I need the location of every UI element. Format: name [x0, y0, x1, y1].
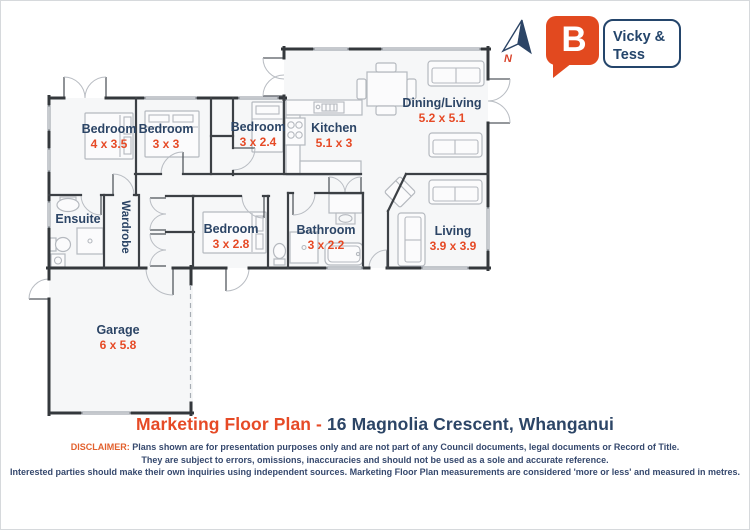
- disclaimer-line-3: Interested parties should make their own…: [1, 467, 749, 477]
- svg-text:3 x 2.8: 3 x 2.8: [213, 237, 250, 251]
- svg-text:3 x 2.4: 3 x 2.4: [240, 135, 277, 149]
- bed-icon: [85, 113, 133, 159]
- svg-text:5.2 x 5.1: 5.2 x 5.1: [419, 111, 466, 125]
- door-swing: [263, 58, 284, 79]
- disclaimer-text-2: They are subject to errors, omissions, i…: [141, 455, 608, 465]
- sofa-icon: [429, 180, 482, 204]
- door-swing: [85, 77, 106, 98]
- plan-title-address: 16 Magnolia Crescent, Whanganui: [327, 414, 614, 434]
- svg-text:Ensuite: Ensuite: [55, 212, 100, 226]
- toilet-icon: [50, 238, 71, 252]
- disclaimer-line-1: DISCLAIMER: Plans shown are for presenta…: [1, 442, 749, 452]
- plan-title: Marketing Floor Plan - 16 Magnolia Cresc…: [1, 414, 749, 435]
- room-label-living: Living 3.9 x 3.9: [430, 224, 477, 253]
- laundry-tub-icon: [51, 254, 65, 267]
- door-swing: [263, 75, 284, 96]
- svg-text:B: B: [561, 20, 586, 59]
- svg-text:Bedroom: Bedroom: [82, 122, 137, 136]
- room-label-ensuite: Ensuite: [55, 212, 100, 226]
- svg-text:Bedroom: Bedroom: [231, 120, 286, 134]
- toilet-icon: [274, 244, 286, 266]
- north-arrow-icon: N: [503, 20, 531, 65]
- svg-text:3 x 2.2: 3 x 2.2: [308, 238, 345, 252]
- sofa-icon: [428, 61, 484, 86]
- svg-text:4 x 3.5: 4 x 3.5: [91, 137, 128, 151]
- room-label-kitchen: Kitchen 5.1 x 3: [311, 121, 357, 150]
- cupboard-icon: [329, 194, 362, 213]
- svg-text:Bedroom: Bedroom: [204, 222, 259, 236]
- svg-text:Living: Living: [435, 224, 472, 238]
- door-swing: [488, 79, 510, 101]
- room-label-wardrobe: Wardrobe: [119, 200, 131, 253]
- svg-text:Tess: Tess: [613, 47, 645, 63]
- svg-text:6 x 5.8: 6 x 5.8: [100, 338, 137, 352]
- disclaimer-text-1: Plans shown are for presentation purpose…: [132, 442, 679, 452]
- sofa-icon: [398, 213, 425, 266]
- door-swing: [488, 101, 510, 123]
- svg-text:Bedroom: Bedroom: [139, 122, 194, 136]
- svg-text:N: N: [504, 53, 513, 65]
- disclaimer-line-2: They are subject to errors, omissions, i…: [1, 455, 749, 465]
- floor-plan-page: Bedroom 4 x 3.5 Bedroom 3 x 3 Bedroom 3 …: [0, 0, 750, 530]
- svg-text:3.9 x 3.9: 3.9 x 3.9: [430, 239, 477, 253]
- svg-text:3 x 3: 3 x 3: [153, 137, 180, 151]
- sofa-icon: [429, 133, 482, 157]
- svg-text:Garage: Garage: [96, 323, 139, 337]
- sink-icon: [57, 197, 79, 212]
- disclaimer-label: DISCLAIMER:: [71, 442, 130, 452]
- room-label-garage: Garage 6 x 5.8: [96, 323, 139, 352]
- svg-text:Kitchen: Kitchen: [311, 121, 357, 135]
- door-swing: [226, 268, 249, 291]
- svg-text:5.1 x 3: 5.1 x 3: [316, 136, 353, 150]
- svg-text:Bathroom: Bathroom: [296, 223, 355, 237]
- plan-title-highlight: Marketing Floor Plan -: [136, 414, 322, 434]
- svg-text:Vicky &: Vicky &: [613, 29, 666, 45]
- door-swing: [29, 279, 49, 299]
- disclaimer-text-3: Interested parties should make their own…: [10, 467, 740, 477]
- door-swing: [64, 77, 85, 98]
- shower-icon: [77, 228, 103, 254]
- brand-logo-icon: B: [546, 16, 599, 78]
- svg-text:Dining/Living: Dining/Living: [402, 96, 481, 110]
- brand-name-box: Vicky & Tess: [604, 20, 680, 67]
- svg-text:Wardrobe: Wardrobe: [119, 200, 131, 253]
- stove-icon: [285, 118, 305, 145]
